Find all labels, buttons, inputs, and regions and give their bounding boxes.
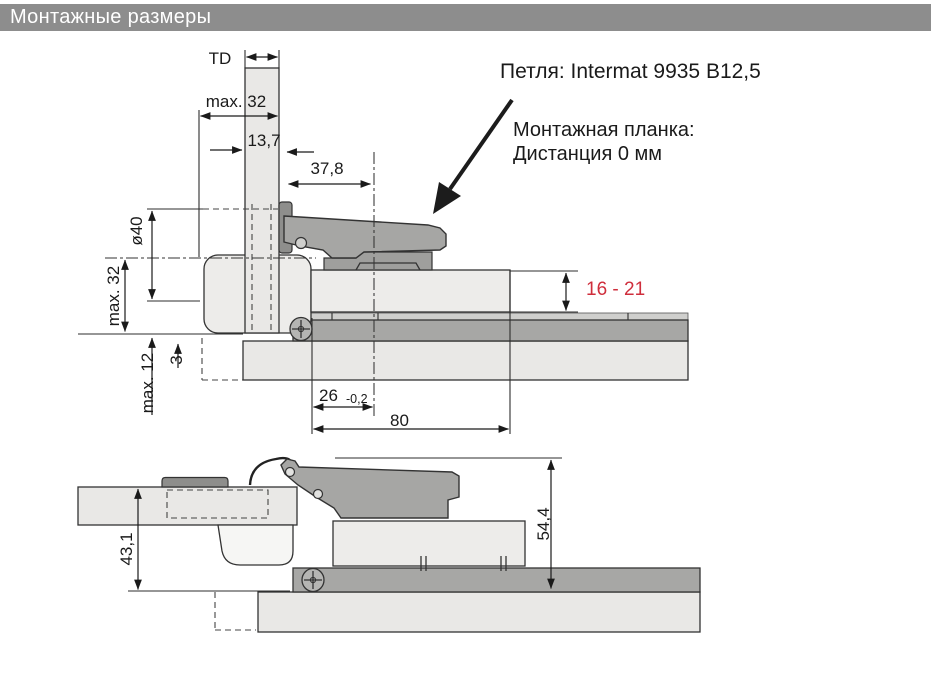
dim-reveal-gap-label: 3	[167, 355, 186, 364]
side-view-drawing: 43,1 54,4	[78, 458, 700, 632]
mounting-screw-side-view	[302, 569, 324, 592]
callout-arrow	[433, 100, 512, 214]
mounting-dimensions-drawing: TD max. 32 13,7 37,8 ø40 max. 32 max. 12…	[0, 0, 931, 698]
mounting-screw-top-view	[290, 318, 312, 341]
callouts: Петля: Intermat 9935 B12,5 Монтажная пла…	[433, 60, 761, 214]
dim-door-thickness-label: TD	[209, 49, 232, 68]
cabinet-edge-band-side-view	[293, 568, 700, 592]
door-panel-side-view	[78, 487, 297, 525]
dim-plate-length-label: 80	[390, 411, 409, 430]
hidden-panel-outline-side	[215, 592, 256, 630]
mounting-plate-side-view	[333, 521, 525, 566]
dim-mounting-height-label: 16 - 21	[586, 279, 645, 300]
pivot-pin-1	[286, 468, 295, 477]
hinge-pivot-pin	[296, 238, 307, 249]
cup-flange-cap	[162, 478, 228, 488]
hinge-arm-side-view	[281, 459, 459, 518]
top-view-drawing: TD max. 32 13,7 37,8 ø40 max. 32 max. 12…	[78, 49, 688, 434]
plate-label-line1: Монтажная планка:	[513, 119, 695, 141]
page: Монтажные размеры	[0, 0, 931, 698]
dim-drilling-label: 26	[319, 386, 338, 405]
td-extension-lines	[245, 50, 279, 68]
dim-max-drilling-label: max. 32	[206, 92, 266, 111]
dim-drilling-tolerance-label: -0,2	[346, 392, 368, 406]
plate-label-line2: Дистанция 0 мм	[513, 143, 662, 165]
dim-cup-diameter-label: ø40	[127, 216, 146, 245]
dim-door-clearance-label: 43,1	[117, 532, 136, 565]
dim-cup-edge-label: 13,7	[247, 131, 280, 150]
hidden-panel-outline	[202, 338, 243, 380]
dim-arm-projection-label: 37,8	[310, 159, 343, 178]
mounting-plate-top-view	[311, 270, 510, 312]
cabinet-panel-edge-band	[293, 320, 688, 341]
pivot-pin-2	[314, 490, 323, 499]
dim-max-gap-label: max. 12	[138, 353, 157, 413]
cup-body-side-view	[218, 525, 293, 565]
dim-overall-height-label: 54,4	[534, 507, 553, 540]
cabinet-panel-side-view	[258, 592, 700, 632]
dim-max-overlay-label: max. 32	[104, 266, 123, 326]
cabinet-panel-top-view	[243, 341, 688, 380]
hinge-type-label: Петля: Intermat 9935 B12,5	[500, 60, 761, 83]
plate-height-extensions	[510, 271, 578, 312]
